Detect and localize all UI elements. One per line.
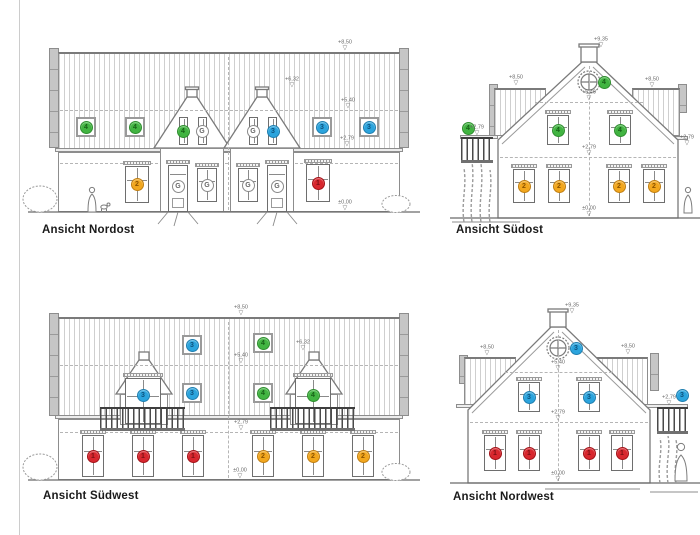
drawing-sheet: Ansicht Nordost Ansicht Südost [0, 0, 700, 535]
elevation-title: Ansicht Südost [456, 224, 543, 236]
entrance-splay-lines [158, 212, 297, 226]
person-figure [684, 187, 692, 213]
elevation-title: Ansicht Nordost [42, 224, 134, 236]
person-figure [88, 187, 110, 212]
ground-line [28, 212, 700, 492]
person-figure [675, 443, 687, 481]
dog-figure [101, 205, 107, 209]
elevation-title: Ansicht Südwest [43, 490, 139, 502]
plants [659, 436, 677, 483]
elevation-title: Ansicht Nordwest [453, 491, 554, 503]
shrubs [463, 162, 491, 222]
linework-front-layer [0, 0, 700, 535]
